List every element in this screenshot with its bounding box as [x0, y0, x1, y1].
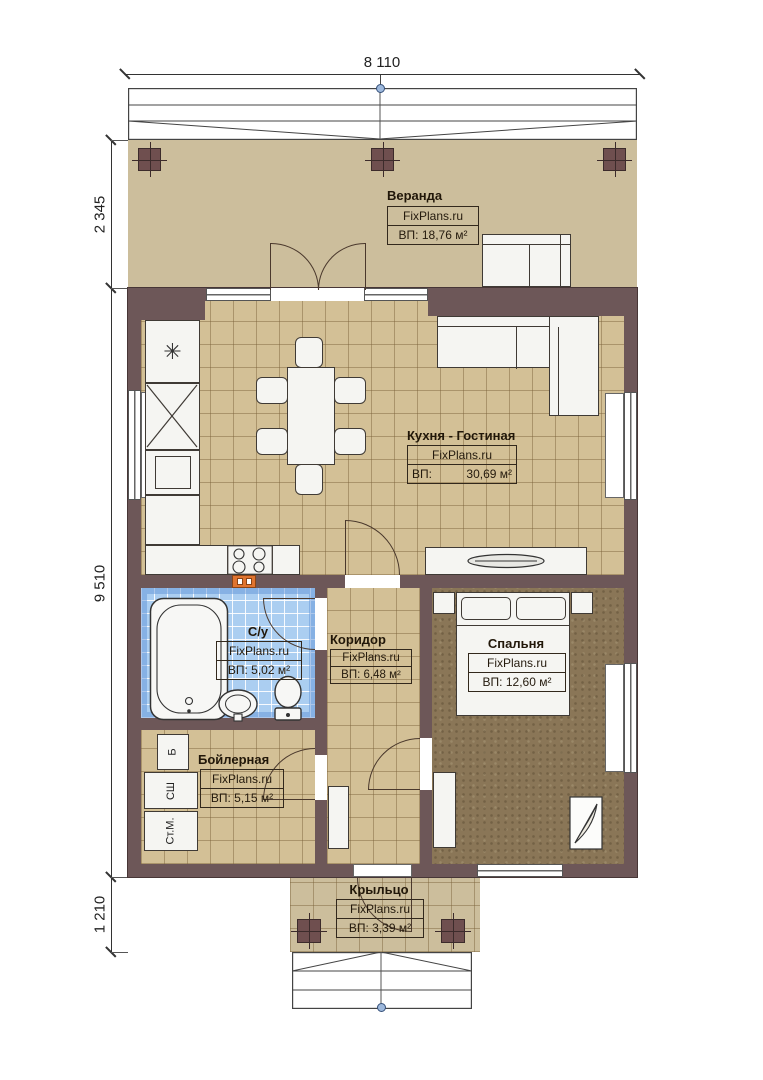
window [364, 288, 428, 301]
extension-line [111, 140, 128, 141]
stove-burners-icon [227, 545, 273, 575]
room-area-value: 30,69 м² [466, 467, 512, 481]
wall-segment [400, 575, 624, 588]
dimension-top-width: 8 110 [332, 54, 432, 71]
area-box-kitchen-living: FixPlans.ru ВП: 30,69 м² [407, 445, 517, 484]
dimension-house-depth: 9 510 [92, 544, 109, 624]
area-box-bedroom: FixPlans.ru ВП: 12,60 м² [468, 653, 566, 692]
room-name-porch: Крыльцо [335, 882, 423, 897]
window-sill [605, 393, 624, 498]
dining-table [287, 367, 335, 465]
window [624, 663, 637, 773]
tv-icon [465, 552, 547, 570]
extension-line [111, 877, 128, 878]
kitchen-fridge [145, 383, 200, 450]
fridge-cross-icon [146, 384, 198, 448]
column [441, 919, 465, 943]
column [603, 148, 626, 171]
watermark: FixPlans.ru [331, 650, 411, 667]
window [128, 390, 141, 500]
column [297, 919, 321, 943]
plant [569, 796, 603, 850]
kitchen-counter-bottom [145, 545, 300, 575]
pillow [461, 597, 511, 620]
dryer-label: СШ [165, 781, 177, 799]
wall-segment [315, 588, 327, 598]
chair [334, 428, 366, 455]
cooktop-star-icon: ✳ [163, 339, 181, 365]
wall-segment [420, 790, 432, 864]
axis-marker [376, 84, 385, 93]
room-area-corridor: ВП: 6,48 м² [331, 667, 411, 683]
kitchen-counter-cooktop: ✳ [145, 320, 200, 383]
room-area-veranda: ВП: 18,76 м² [388, 226, 478, 244]
veranda-sofa [482, 234, 571, 287]
window [624, 392, 637, 500]
area-box-boiler: FixPlans.ru ВП: 5,15 м² [200, 769, 284, 808]
room-name-boiler: Бойлерная [198, 752, 269, 767]
window [477, 864, 563, 877]
watermark: FixPlans.ru [201, 770, 283, 789]
wardrobe [433, 772, 456, 848]
dimension-veranda-depth: 2 345 [92, 175, 109, 255]
wall-segment [412, 864, 477, 877]
wall-segment [428, 288, 637, 301]
watermark: FixPlans.ru [469, 654, 565, 673]
nightstand [571, 592, 593, 614]
chair [295, 464, 323, 495]
watermark: FixPlans.ru [217, 642, 301, 661]
wall-segment [128, 500, 141, 877]
floor-plan: 8 110 2 345 9 510 1 210 [0, 0, 763, 1080]
wall-segment [563, 864, 637, 877]
corner-sofa-chaise [549, 316, 599, 416]
extension-line [111, 952, 128, 953]
entrance-opening [353, 864, 412, 877]
watermark: FixPlans.ru [388, 207, 478, 226]
room-area-porch: ВП: 3,39 м² [337, 919, 423, 937]
extension-line [111, 288, 128, 289]
wall-segment [624, 500, 637, 663]
watermark: FixPlans.ru [408, 446, 516, 465]
drying-cabinet: СШ [144, 772, 198, 809]
watermark: FixPlans.ru [337, 900, 423, 919]
room-area-prefix: ВП: [412, 467, 432, 481]
window-sill [605, 664, 624, 772]
hall-closet [328, 786, 349, 849]
nightstand [433, 592, 455, 614]
area-box-bathroom: FixPlans.ru ВП: 5,02 м² [216, 641, 302, 680]
room-name-bedroom: Спальня [468, 636, 564, 651]
kitchen-sink [145, 450, 200, 495]
wall-segment [315, 650, 327, 755]
flue [232, 575, 256, 588]
area-box-veranda: FixPlans.ru ВП: 18,76 м² [387, 206, 479, 245]
porch-steps [292, 952, 472, 1009]
room-name-bathroom: С/у [216, 624, 300, 639]
column [371, 148, 394, 171]
bathroom-sink [217, 686, 259, 723]
wall-segment [315, 800, 327, 864]
chair [256, 428, 288, 455]
chair [295, 337, 323, 368]
chair [256, 377, 288, 404]
roof-overhang [128, 88, 637, 140]
column [138, 148, 161, 171]
wall-segment [128, 864, 353, 877]
axis-marker [377, 1003, 386, 1012]
room-area-boiler: ВП: 5,15 м² [201, 789, 283, 807]
area-box-porch: FixPlans.ru ВП: 3,39 м² [336, 899, 424, 938]
toilet [271, 675, 305, 723]
area-box-corridor: FixPlans.ru ВП: 6,48 м² [330, 649, 412, 684]
wall-pier [428, 301, 624, 316]
kitchen-counter [145, 495, 200, 545]
room-name-veranda: Веранда [387, 188, 442, 203]
wall-segment [624, 773, 637, 877]
boiler-unit: Б [157, 734, 189, 770]
wall-segment [624, 288, 637, 392]
dimension-porch-depth: 1 210 [92, 875, 109, 955]
window [206, 288, 271, 301]
wall-segment [128, 288, 141, 390]
dimension-line-top [125, 74, 640, 75]
washer-label: Ст.М. [165, 817, 177, 844]
washing-machine: Ст.М. [144, 811, 198, 851]
room-name-kitchen-living: Кухня - Гостиная [407, 428, 515, 443]
wall-pier [141, 301, 205, 320]
pillow [516, 597, 566, 620]
chair [334, 377, 366, 404]
boiler-unit-label: Б [167, 748, 179, 755]
wall-segment [420, 588, 432, 738]
room-area-bathroom: ВП: 5,02 м² [217, 661, 301, 679]
dimension-line-left [111, 140, 112, 952]
room-area-bedroom: ВП: 12,60 м² [469, 673, 565, 691]
room-name-corridor: Коридор [330, 632, 386, 647]
